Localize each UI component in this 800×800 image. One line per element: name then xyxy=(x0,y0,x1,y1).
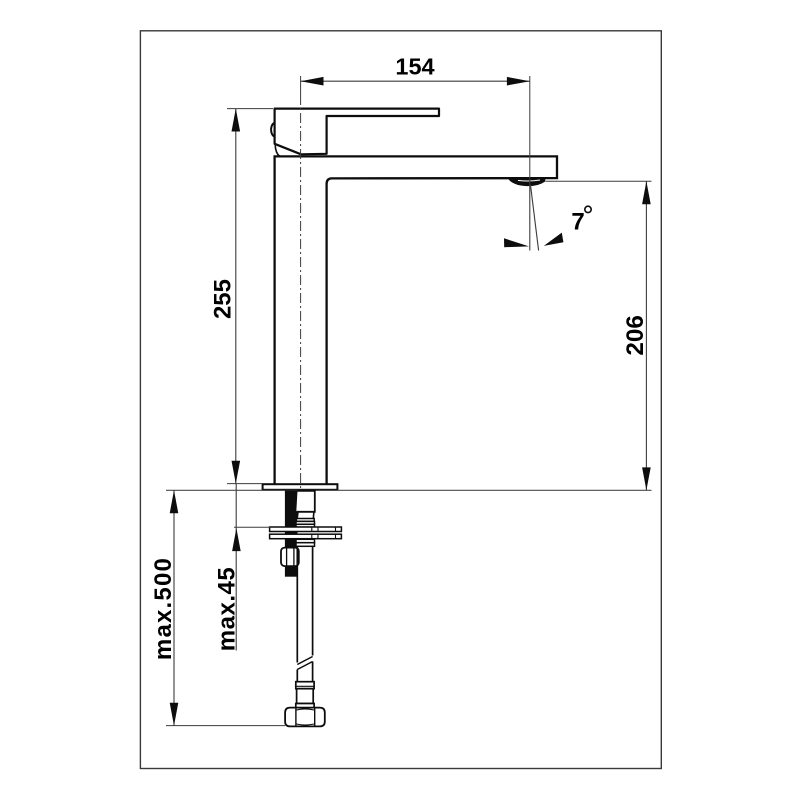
svg-text:154: 154 xyxy=(395,54,434,80)
svg-text:7: 7 xyxy=(571,209,584,236)
svg-text:max.500: max.500 xyxy=(150,557,177,660)
svg-text:max.45: max.45 xyxy=(213,567,240,651)
svg-text:206: 206 xyxy=(622,315,649,356)
svg-text:255: 255 xyxy=(210,279,237,319)
